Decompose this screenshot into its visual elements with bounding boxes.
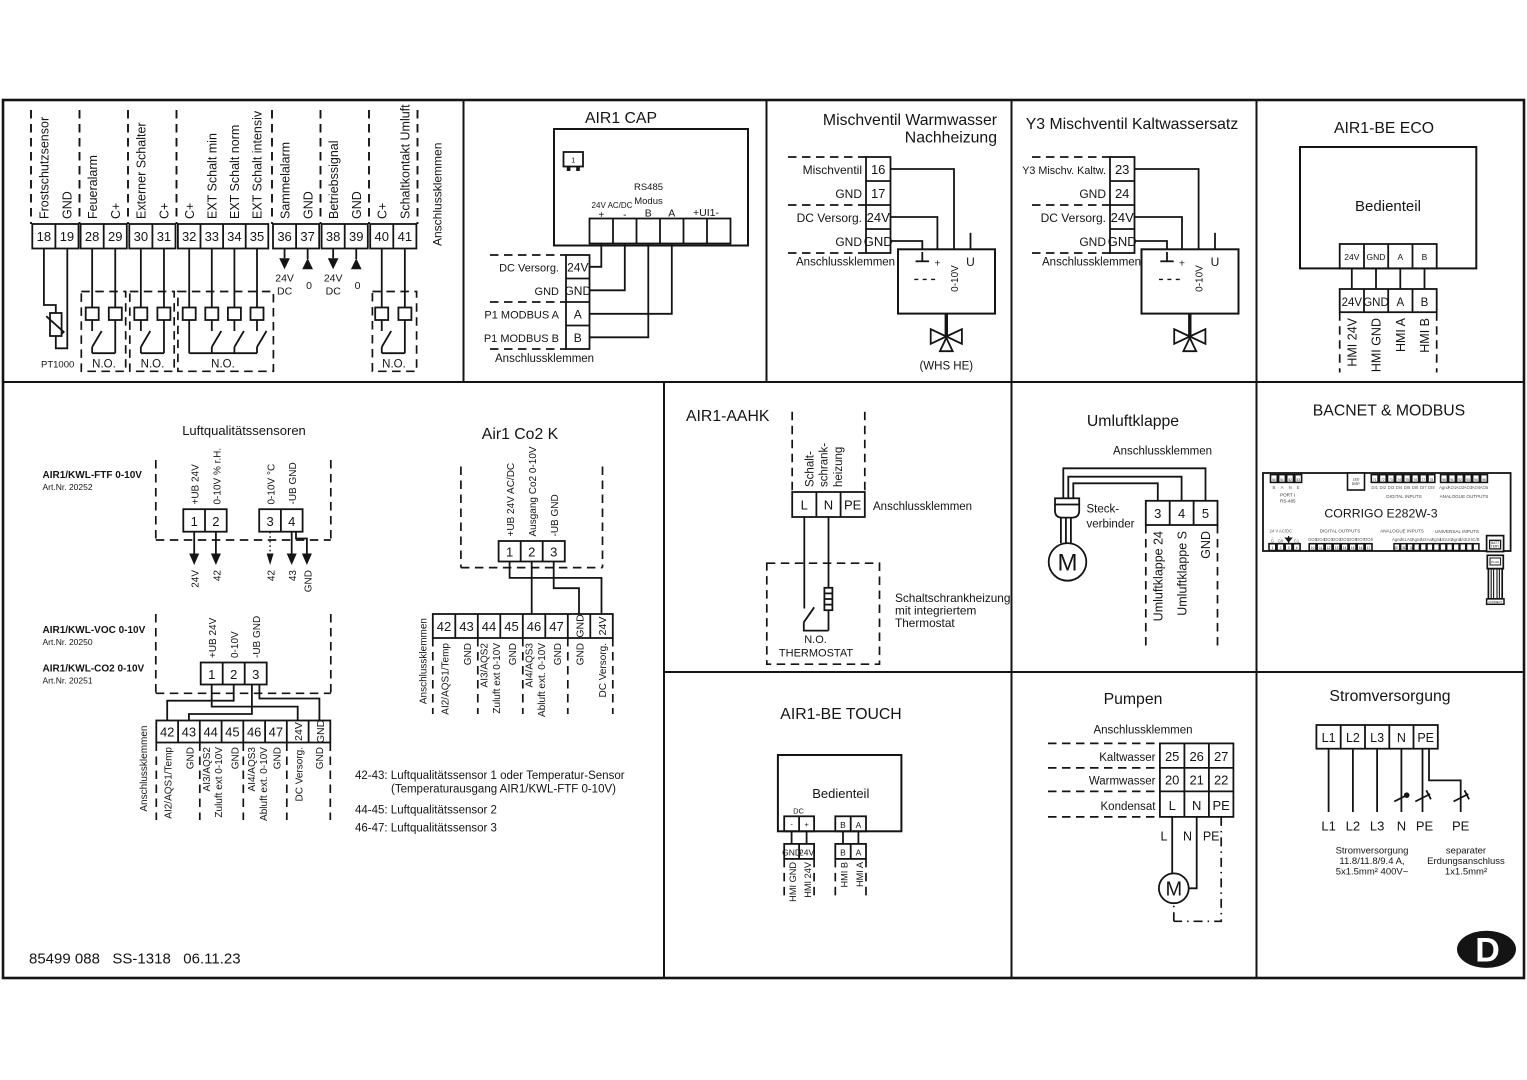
svg-text:45: 45 bbox=[225, 725, 239, 740]
svg-text:M: M bbox=[1165, 879, 1182, 901]
svg-text:Y3 Mischventil Kaltwassersatz: Y3 Mischventil Kaltwassersatz bbox=[1026, 116, 1239, 133]
svg-text:24V: 24V bbox=[191, 570, 202, 588]
svg-text:GND: GND bbox=[315, 747, 326, 769]
svg-text:42-43: Luftqualitätssensor 1 o: 42-43: Luftqualitätssensor 1 oder Temper… bbox=[355, 770, 625, 782]
svg-text:47: 47 bbox=[549, 619, 563, 634]
svg-text:GND: GND bbox=[1363, 297, 1389, 309]
svg-text:Abluft ext. 0-10V: Abluft ext. 0-10V bbox=[537, 643, 548, 717]
svg-text:30: 30 bbox=[134, 229, 148, 244]
svg-text:24V: 24V bbox=[1342, 297, 1363, 309]
svg-text:AO5: AO5 bbox=[1480, 485, 1489, 490]
svg-text:-: - bbox=[623, 210, 626, 221]
svg-text:DIGITAL OUTPUTS: DIGITAL OUTPUTS bbox=[1320, 529, 1361, 534]
svg-text:DI3: DI3 bbox=[1388, 485, 1395, 490]
svg-text:Betriebssignal: Betriebssignal bbox=[327, 140, 341, 219]
svg-text:46: 46 bbox=[527, 619, 541, 634]
svg-text:14: 14 bbox=[1343, 546, 1347, 550]
svg-text:24V: 24V bbox=[293, 722, 305, 741]
svg-text:HMI 24V: HMI 24V bbox=[803, 861, 813, 898]
svg-text:HMI B: HMI B bbox=[1418, 318, 1432, 353]
svg-text:C+: C+ bbox=[158, 203, 172, 219]
svg-text:separater: separater bbox=[1446, 846, 1486, 857]
svg-text:Anschlussklemmen: Anschlussklemmen bbox=[419, 618, 430, 704]
svg-text:24V: 24V bbox=[867, 210, 890, 225]
svg-text:44-45: Luftqualitätssensor 2: 44-45: Luftqualitätssensor 2 bbox=[355, 804, 497, 816]
svg-text:Zuluft ext 0-10V: Zuluft ext 0-10V bbox=[492, 643, 503, 714]
svg-text:Erdungsanschluss: Erdungsanschluss bbox=[1427, 856, 1505, 867]
svg-text:P1 MODBUS B: P1 MODBUS B bbox=[484, 333, 559, 345]
svg-text:Ausgang Co2 0-10V: Ausgang Co2 0-10V bbox=[528, 446, 539, 536]
svg-text:L: L bbox=[1169, 798, 1176, 813]
svg-text:71: 71 bbox=[1373, 478, 1377, 482]
svg-text:-UB GND: -UB GND bbox=[550, 494, 561, 536]
svg-text:Anschlussklemmen: Anschlussklemmen bbox=[1093, 725, 1192, 737]
svg-text:TERY: TERY bbox=[1491, 544, 1500, 548]
svg-text:B: B bbox=[840, 848, 846, 858]
svg-text:26: 26 bbox=[1189, 749, 1203, 764]
svg-text:PE: PE bbox=[1452, 819, 1470, 834]
svg-text:AI4/AQS3: AI4/AQS3 bbox=[525, 643, 536, 688]
svg-text:Schalt-: Schalt- bbox=[805, 451, 817, 487]
svg-text:DC: DC bbox=[326, 286, 342, 298]
svg-text:AI4/AQS3: AI4/AQS3 bbox=[247, 747, 258, 792]
svg-text:GND: GND bbox=[576, 643, 587, 665]
svg-text:L3: L3 bbox=[1370, 819, 1384, 834]
svg-text:41: 41 bbox=[398, 229, 412, 244]
svg-text:3: 3 bbox=[266, 514, 273, 529]
svg-text:GND: GND bbox=[185, 747, 196, 769]
svg-text:47: 47 bbox=[269, 725, 283, 740]
svg-text:-UB GND: -UB GND bbox=[252, 616, 263, 658]
svg-text:UNIVERSAL INPUTS: UNIVERSAL INPUTS bbox=[1435, 529, 1479, 534]
svg-text:GND: GND bbox=[535, 286, 560, 298]
svg-text:21: 21 bbox=[1189, 773, 1203, 788]
svg-text:B: B bbox=[574, 331, 582, 345]
svg-text:DI1: DI1 bbox=[1371, 485, 1378, 490]
svg-text:76: 76 bbox=[1413, 478, 1417, 482]
svg-text:24V: 24V bbox=[799, 848, 814, 858]
svg-text:91: 91 bbox=[1450, 478, 1454, 482]
svg-text:75: 75 bbox=[1405, 478, 1409, 482]
svg-text:AIR1/KWL-FTF 0-10V: AIR1/KWL-FTF 0-10V bbox=[43, 470, 143, 481]
svg-text:4: 4 bbox=[1178, 506, 1185, 521]
svg-text:GND: GND bbox=[1108, 234, 1137, 249]
svg-text:HMI B: HMI B bbox=[840, 862, 850, 888]
svg-text:27: 27 bbox=[1214, 749, 1228, 764]
svg-text:Zuluft ext 0-10V: Zuluft ext 0-10V bbox=[214, 747, 225, 818]
svg-text:EXT Schalt min: EXT Schalt min bbox=[206, 133, 220, 219]
svg-text:N: N bbox=[1289, 485, 1292, 490]
svg-text:Kaltwasser: Kaltwasser bbox=[1099, 752, 1155, 764]
svg-text:+UB 24V: +UB 24V bbox=[191, 464, 202, 505]
svg-text:CONNECT: CONNECT bbox=[1488, 600, 1502, 604]
svg-text:N: N bbox=[1397, 731, 1406, 745]
svg-text:GND: GND bbox=[1367, 252, 1386, 262]
svg-text:40: 40 bbox=[375, 229, 389, 244]
svg-text:73: 73 bbox=[1389, 478, 1393, 482]
svg-text:DI7: DI7 bbox=[1420, 485, 1427, 490]
svg-text:C+: C+ bbox=[109, 203, 123, 219]
svg-text:2: 2 bbox=[1280, 546, 1282, 550]
svg-text:EXT Schalt intensiv: EXT Schalt intensiv bbox=[251, 110, 265, 219]
svg-text:HMI A: HMI A bbox=[1394, 317, 1408, 352]
svg-text:35: 35 bbox=[250, 229, 264, 244]
svg-text:(WHS HE): (WHS HE) bbox=[919, 361, 973, 373]
svg-text:AI3/AQS2: AI3/AQS2 bbox=[480, 643, 491, 688]
svg-text:C/B: C/B bbox=[1473, 537, 1480, 542]
svg-text:Y3 Mischv. Kaltw.: Y3 Mischv. Kaltw. bbox=[1022, 165, 1106, 177]
svg-text:(Temperaturausgang AIR1/KWL-FT: (Temperaturausgang AIR1/KWL-FTF 0-10V) bbox=[391, 784, 616, 796]
svg-text:+: + bbox=[598, 210, 604, 221]
svg-text:Mischventil Warmwasser: Mischventil Warmwasser bbox=[823, 112, 997, 129]
svg-text:Anschlussklemmen: Anschlussklemmen bbox=[1042, 257, 1141, 269]
svg-text:95: 95 bbox=[1482, 478, 1486, 482]
svg-text:93: 93 bbox=[1466, 478, 1470, 482]
svg-text:L2: L2 bbox=[1346, 819, 1360, 834]
svg-text:17: 17 bbox=[871, 186, 885, 201]
svg-text:AIR1-BE TOUCH: AIR1-BE TOUCH bbox=[780, 706, 901, 723]
svg-text:A: A bbox=[1281, 485, 1284, 490]
svg-text:45: 45 bbox=[504, 619, 518, 634]
svg-text:24V: 24V bbox=[597, 617, 609, 636]
svg-text:53: 53 bbox=[1296, 478, 1300, 482]
svg-text:RS-485: RS-485 bbox=[1280, 499, 1296, 504]
svg-text:schrank-: schrank- bbox=[819, 443, 831, 487]
svg-text:PT1000: PT1000 bbox=[41, 360, 74, 371]
svg-text:AI2/AQS1/Temp: AI2/AQS1/Temp bbox=[441, 643, 452, 715]
svg-text:31: 31 bbox=[157, 229, 171, 244]
svg-text:LED: LED bbox=[1353, 478, 1360, 482]
svg-text:Anschlussklemmen: Anschlussklemmen bbox=[431, 143, 445, 246]
svg-text:AIR1/KWL-VOC 0-10V: AIR1/KWL-VOC 0-10V bbox=[43, 625, 146, 636]
svg-text:GND: GND bbox=[1199, 531, 1213, 559]
svg-text:GND: GND bbox=[61, 191, 75, 219]
svg-text:ANALOGUE OUTPUTS: ANALOGUE OUTPUTS bbox=[1440, 494, 1489, 499]
svg-text:Warmwasser: Warmwasser bbox=[1089, 776, 1156, 788]
svg-text:78: 78 bbox=[1430, 478, 1434, 482]
svg-text:72: 72 bbox=[1381, 478, 1385, 482]
svg-text:31: 31 bbox=[1402, 546, 1406, 550]
svg-text:3: 3 bbox=[550, 545, 557, 560]
svg-text:1x1.5mm²: 1x1.5mm² bbox=[1445, 867, 1487, 878]
svg-text:GND: GND bbox=[835, 235, 862, 249]
svg-text:Externer Schalter: Externer Schalter bbox=[135, 122, 149, 219]
svg-text:A: A bbox=[856, 848, 862, 858]
svg-text:52: 52 bbox=[1288, 478, 1292, 482]
svg-text:Bedienteil: Bedienteil bbox=[812, 786, 869, 801]
svg-text:0: 0 bbox=[355, 280, 361, 292]
svg-text:U: U bbox=[966, 255, 975, 269]
svg-text:17: 17 bbox=[1367, 546, 1371, 550]
svg-text:15: 15 bbox=[1351, 546, 1355, 550]
svg-text:AI3/AQS2: AI3/AQS2 bbox=[202, 747, 213, 792]
svg-text:+UB 24V: +UB 24V bbox=[208, 617, 219, 658]
svg-text:DC Versorg.: DC Versorg. bbox=[499, 263, 559, 275]
svg-text:DC: DC bbox=[277, 286, 293, 298]
svg-text:38: 38 bbox=[326, 229, 340, 244]
svg-text:DI2: DI2 bbox=[1380, 485, 1387, 490]
svg-text:Mischventil: Mischventil bbox=[803, 163, 862, 177]
svg-text:11.8/11.8/9.4 A,: 11.8/11.8/9.4 A, bbox=[1339, 856, 1404, 867]
svg-text:N.O.: N.O. bbox=[804, 634, 827, 646]
svg-text:-UB GND: -UB GND bbox=[288, 462, 299, 504]
svg-text:ANALOGUE INPUTS: ANALOGUE INPUTS bbox=[1380, 529, 1424, 534]
svg-text:A: A bbox=[574, 308, 582, 322]
svg-text:43: 43 bbox=[288, 570, 299, 582]
svg-text:N: N bbox=[1192, 798, 1201, 813]
svg-text:0: 0 bbox=[306, 280, 312, 292]
svg-text:+: + bbox=[934, 258, 940, 270]
svg-text:GND: GND bbox=[835, 187, 862, 201]
svg-text:AIR1-BE ECO: AIR1-BE ECO bbox=[1334, 120, 1434, 137]
svg-text:B: B bbox=[840, 820, 846, 830]
svg-text:46: 46 bbox=[247, 725, 261, 740]
svg-text:Anschlussklemmen: Anschlussklemmen bbox=[1113, 446, 1212, 458]
svg-text:G0: G0 bbox=[1278, 539, 1284, 544]
svg-text:24V: 24V bbox=[1344, 252, 1359, 262]
svg-text:42: 42 bbox=[160, 725, 174, 740]
svg-text:GND: GND bbox=[273, 747, 284, 769]
svg-text:AI2/AQS1/Temp: AI2/AQS1/Temp bbox=[164, 747, 175, 819]
svg-text:2: 2 bbox=[528, 545, 535, 560]
svg-text:24V: 24V bbox=[275, 273, 294, 285]
svg-text:P1 MODBUS A: P1 MODBUS A bbox=[484, 310, 559, 322]
svg-text:G: G bbox=[1271, 539, 1274, 544]
svg-text:D: D bbox=[1475, 932, 1500, 970]
svg-text:GND: GND bbox=[230, 747, 241, 769]
svg-text:PE: PE bbox=[1203, 830, 1220, 844]
svg-text:DISP.: DISP. bbox=[1352, 482, 1361, 486]
svg-text:77: 77 bbox=[1422, 478, 1426, 482]
svg-text:A: A bbox=[1397, 252, 1403, 262]
svg-text:DC Versorg.: DC Versorg. bbox=[295, 747, 306, 801]
svg-text:46-47: Luftqualitätssensor 3: 46-47: Luftqualitätssensor 3 bbox=[355, 823, 497, 835]
svg-text:24V: 24V bbox=[324, 273, 343, 285]
svg-text:44: 44 bbox=[203, 725, 217, 740]
svg-text:GND: GND bbox=[575, 614, 587, 638]
svg-text:Stromversorgung: Stromversorgung bbox=[1329, 688, 1450, 705]
svg-text:36: 36 bbox=[277, 229, 291, 244]
svg-text:Umluftklappe: Umluftklappe bbox=[1087, 413, 1179, 430]
svg-text:GND: GND bbox=[350, 191, 364, 219]
svg-text:5x1.5mm² 400V~: 5x1.5mm² 400V~ bbox=[1336, 867, 1409, 878]
svg-text:BACNET & MODBUS: BACNET & MODBUS bbox=[1313, 403, 1465, 420]
svg-text:25: 25 bbox=[1165, 749, 1179, 764]
svg-text:RS485: RS485 bbox=[634, 182, 663, 193]
svg-text:16: 16 bbox=[1359, 546, 1363, 550]
svg-text:L: L bbox=[801, 498, 808, 513]
svg-text:PE: PE bbox=[1213, 798, 1231, 813]
svg-text:44: 44 bbox=[482, 619, 496, 634]
svg-text:4: 4 bbox=[1296, 546, 1298, 550]
svg-text:39: 39 bbox=[349, 229, 363, 244]
svg-text:GND: GND bbox=[463, 643, 474, 665]
svg-text:GND: GND bbox=[301, 191, 315, 219]
svg-text:34: 34 bbox=[227, 229, 241, 244]
svg-text:GND: GND bbox=[564, 284, 591, 298]
svg-text:L3: L3 bbox=[1370, 731, 1384, 745]
svg-text:1: 1 bbox=[506, 545, 513, 560]
svg-text:24: 24 bbox=[1115, 186, 1129, 201]
svg-text:Thermostat: Thermostat bbox=[895, 616, 955, 630]
svg-text:85499 088 SS-1318 06.11.23: 85499 088 SS-1318 06.11.23 bbox=[29, 951, 241, 968]
svg-text:1: 1 bbox=[208, 667, 215, 682]
svg-text:+UI1-: +UI1- bbox=[693, 207, 719, 219]
svg-text:Abluft ext. 0-10V: Abluft ext. 0-10V bbox=[259, 747, 270, 821]
svg-text:PE: PE bbox=[1417, 731, 1434, 745]
svg-text:0-10V: 0-10V bbox=[950, 265, 961, 292]
svg-text:94: 94 bbox=[1474, 478, 1478, 482]
svg-text:B: B bbox=[645, 208, 652, 220]
svg-text:GND: GND bbox=[864, 234, 893, 249]
svg-text:GND: GND bbox=[553, 643, 564, 665]
svg-text:16: 16 bbox=[871, 162, 885, 177]
svg-text:DC Versorg.: DC Versorg. bbox=[598, 643, 609, 697]
svg-text:Bedienteil: Bedienteil bbox=[1355, 198, 1421, 215]
svg-text:90: 90 bbox=[1442, 478, 1446, 482]
svg-text:Kondensat: Kondensat bbox=[1101, 801, 1157, 813]
svg-text:1: 1 bbox=[571, 156, 575, 165]
svg-text:Pumpen: Pumpen bbox=[1104, 691, 1163, 708]
svg-text:A: A bbox=[1396, 297, 1404, 309]
svg-text:C+: C+ bbox=[183, 203, 197, 219]
svg-text:DI4: DI4 bbox=[1396, 485, 1403, 490]
svg-text:10: 10 bbox=[1311, 546, 1315, 550]
svg-text:M: M bbox=[1058, 550, 1078, 577]
svg-text:Anschlussklemmen: Anschlussklemmen bbox=[873, 501, 972, 513]
svg-text:PORT I: PORT I bbox=[1280, 493, 1295, 498]
svg-text:Nachheizung: Nachheizung bbox=[905, 130, 997, 147]
svg-text:42: 42 bbox=[267, 570, 278, 582]
svg-text:4: 4 bbox=[288, 514, 295, 529]
svg-text:+: + bbox=[804, 820, 809, 829]
svg-text:Modus: Modus bbox=[634, 196, 663, 207]
svg-text:GND: GND bbox=[1079, 235, 1106, 249]
svg-text:24V AC/DC: 24V AC/DC bbox=[592, 201, 633, 210]
svg-text:Anschlussklemmen: Anschlussklemmen bbox=[495, 353, 594, 365]
svg-text:heizung: heizung bbox=[833, 447, 845, 487]
svg-text:3: 3 bbox=[1154, 506, 1161, 521]
svg-text:Steck-: Steck- bbox=[1087, 504, 1120, 516]
svg-text:L: L bbox=[1161, 830, 1168, 844]
svg-text:N.O.: N.O. bbox=[211, 359, 235, 371]
svg-text:GND: GND bbox=[508, 643, 519, 665]
svg-text:Stromversorgung: Stromversorgung bbox=[1336, 846, 1409, 857]
svg-text:24V: 24V bbox=[567, 261, 588, 275]
svg-text:PE: PE bbox=[1416, 819, 1434, 834]
svg-text:13: 13 bbox=[1335, 546, 1339, 550]
svg-text:2: 2 bbox=[230, 667, 237, 682]
svg-text:B: B bbox=[1421, 297, 1429, 309]
svg-text:DC: DC bbox=[793, 807, 804, 816]
svg-text:30: 30 bbox=[1394, 546, 1398, 550]
svg-text:C1: C1 bbox=[1294, 539, 1300, 544]
svg-text:PE: PE bbox=[844, 498, 862, 513]
svg-text:HMI 24V: HMI 24V bbox=[1346, 317, 1360, 366]
svg-text:0-10V °C: 0-10V °C bbox=[267, 464, 278, 505]
svg-text:20: 20 bbox=[1165, 773, 1179, 788]
svg-text:Umluftklappe S: Umluftklappe S bbox=[1175, 531, 1189, 616]
svg-text:Feueralarm: Feueralarm bbox=[86, 155, 100, 219]
svg-text:33: 33 bbox=[205, 229, 219, 244]
svg-text:N.O.: N.O. bbox=[382, 359, 406, 371]
svg-text:28: 28 bbox=[85, 229, 99, 244]
svg-text:37: 37 bbox=[300, 229, 314, 244]
svg-text:A: A bbox=[668, 208, 675, 220]
svg-text:18: 18 bbox=[37, 229, 51, 244]
svg-text:2: 2 bbox=[212, 514, 219, 529]
svg-text:GND: GND bbox=[315, 719, 327, 743]
svg-text:CORRIGO E282W-3: CORRIGO E282W-3 bbox=[1324, 507, 1437, 521]
svg-text:THERMOSTAT: THERMOSTAT bbox=[779, 648, 853, 660]
svg-text:Art.Nr. 20252: Art.Nr. 20252 bbox=[43, 482, 93, 492]
svg-text:Art.Nr. 20251: Art.Nr. 20251 bbox=[43, 675, 93, 685]
svg-text:L1: L1 bbox=[1322, 731, 1336, 745]
svg-text:43: 43 bbox=[182, 725, 196, 740]
svg-text:3: 3 bbox=[252, 667, 259, 682]
svg-text:GND: GND bbox=[303, 570, 314, 592]
svg-text:Anschlussklemmen: Anschlussklemmen bbox=[796, 257, 895, 269]
svg-text:L2: L2 bbox=[1346, 731, 1360, 745]
svg-text:5: 5 bbox=[1202, 506, 1209, 521]
svg-text:42: 42 bbox=[212, 570, 223, 582]
svg-text:A: A bbox=[856, 820, 862, 830]
svg-text:PLUG: PLUG bbox=[1491, 560, 1500, 564]
svg-text:Luftqualitätssensoren: Luftqualitätssensoren bbox=[182, 423, 306, 438]
svg-text:E: E bbox=[1297, 485, 1300, 490]
svg-text:DI6: DI6 bbox=[1412, 485, 1419, 490]
svg-text:HMI A: HMI A bbox=[855, 861, 865, 887]
svg-text:AIR1-AAHK: AIR1-AAHK bbox=[686, 408, 770, 425]
svg-text:HMI GND: HMI GND bbox=[1370, 318, 1384, 372]
svg-text:42: 42 bbox=[437, 619, 451, 634]
svg-text:74: 74 bbox=[1397, 478, 1401, 482]
svg-text:DC Versorg.: DC Versorg. bbox=[1041, 211, 1106, 225]
svg-text:50: 50 bbox=[1272, 478, 1276, 482]
svg-text:U: U bbox=[1211, 255, 1220, 269]
svg-text:32: 32 bbox=[182, 229, 196, 244]
svg-text:92: 92 bbox=[1458, 478, 1462, 482]
svg-text:23: 23 bbox=[1115, 162, 1129, 177]
svg-text:Schaltkontakt Umluft: Schaltkontakt Umluft bbox=[399, 104, 413, 219]
svg-text:L1: L1 bbox=[1321, 819, 1335, 834]
svg-text:B: B bbox=[1273, 485, 1276, 490]
svg-text:DI5: DI5 bbox=[1404, 485, 1411, 490]
svg-text:N.O.: N.O. bbox=[92, 359, 116, 371]
svg-text:HMI GND: HMI GND bbox=[788, 862, 798, 902]
svg-text:Frostschutzsensor: Frostschutzsensor bbox=[38, 117, 52, 219]
svg-text:DI8: DI8 bbox=[1428, 485, 1435, 490]
svg-text:+UB 24V AC/DC: +UB 24V AC/DC bbox=[506, 463, 517, 537]
svg-text:N: N bbox=[1183, 830, 1192, 844]
svg-text:Air1 Co2 K: Air1 Co2 K bbox=[482, 426, 559, 443]
svg-text:Umluftklappe 24: Umluftklappe 24 bbox=[1152, 531, 1166, 621]
svg-text:0-10V: 0-10V bbox=[1195, 265, 1206, 292]
svg-text:N: N bbox=[1397, 819, 1406, 834]
svg-text:0-10V % r.H.: 0-10V % r.H. bbox=[212, 448, 223, 505]
svg-text:GND: GND bbox=[1079, 187, 1106, 201]
svg-text:EXT Schalt norm: EXT Schalt norm bbox=[228, 125, 242, 219]
svg-text:24V: 24V bbox=[1111, 210, 1134, 225]
svg-text:19: 19 bbox=[60, 229, 74, 244]
svg-text:C+: C+ bbox=[375, 203, 389, 219]
svg-text:Sammelalarm: Sammelalarm bbox=[278, 142, 292, 219]
svg-text:DIGITAL INPUTS: DIGITAL INPUTS bbox=[1386, 494, 1421, 499]
svg-text:12: 12 bbox=[1327, 546, 1331, 550]
svg-text:3: 3 bbox=[1288, 546, 1290, 550]
svg-text:0-10V: 0-10V bbox=[230, 631, 241, 658]
svg-text:Anschlussklemmen: Anschlussklemmen bbox=[139, 726, 150, 812]
